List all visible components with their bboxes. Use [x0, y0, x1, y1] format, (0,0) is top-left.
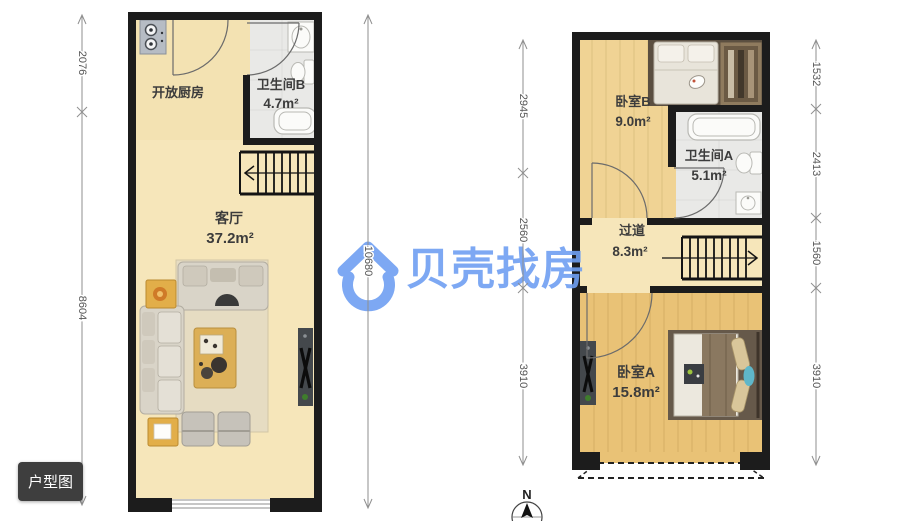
- wardrobe-icon: [720, 42, 762, 106]
- stove-icon: [140, 20, 166, 54]
- window-level1: [172, 499, 270, 509]
- room-label-bedroom-a: 卧室A: [617, 364, 655, 380]
- room-label-bathroom-a: 卫生间A: [685, 148, 734, 163]
- watermark-brand-text: 贝壳找房: [406, 245, 586, 294]
- dim-l1-10680: 10680: [362, 246, 374, 277]
- room-label-hallway: 过道: [619, 223, 645, 238]
- dim-l2-1532: 1532: [810, 62, 822, 86]
- room-area-bathroom-b: 4.7m²: [263, 96, 299, 111]
- dim-l2-3910-right: 3910: [810, 364, 822, 388]
- living-room-furniture: [140, 260, 268, 446]
- room-label-bedroom-b: 卧室B: [615, 94, 650, 109]
- dim-l1-2076: 2076: [76, 51, 88, 75]
- compass-north-label: N: [522, 487, 531, 502]
- room-label-living-room: 客厅: [214, 210, 243, 226]
- room-area-bedroom-b: 9.0m²: [615, 114, 651, 129]
- dim-l2-2560: 2560: [517, 218, 529, 242]
- dim-l2-1560: 1560: [810, 241, 822, 265]
- watermark: 贝壳找房: [343, 245, 586, 306]
- dimension-line-l1-left: [77, 15, 87, 505]
- dim-l2-2413: 2413: [810, 152, 822, 176]
- floor-plan-level2: 卧室B 9.0m² 卫生间A 5.1m² 过道 8.3m² 卧室A 15.8m²: [572, 32, 770, 478]
- room-area-bathroom-a: 5.1m²: [691, 168, 727, 183]
- floorplan-viewer[interactable]: 开放厨房 卫生间B 4.7m² 客厅 37.2m²: [0, 0, 905, 521]
- floorplan-canvas: 开放厨房 卫生间B 4.7m² 客厅 37.2m²: [0, 0, 905, 521]
- room-area-living-room: 37.2m²: [206, 230, 254, 247]
- floor-plan-level1: 开放厨房 卫生间B 4.7m² 客厅 37.2m²: [128, 12, 322, 512]
- tv-unit-level2: [580, 341, 596, 405]
- dim-l2-2945: 2945: [517, 94, 529, 118]
- room-area-hallway: 8.3m²: [612, 244, 648, 259]
- tv-unit-level1: [298, 328, 313, 406]
- compass-icon: N: [512, 487, 542, 521]
- bay-window: [578, 463, 764, 478]
- room-area-bedroom-a: 15.8m²: [612, 384, 660, 401]
- dim-l1-8604: 8604: [76, 296, 88, 320]
- dim-l2-3910-left: 3910: [517, 364, 529, 388]
- bedroom-a-bed: [668, 330, 762, 420]
- floorplan-tab-button[interactable]: 户型图: [18, 462, 83, 501]
- room-label-open-kitchen: 开放厨房: [152, 85, 204, 100]
- room-label-bathroom-b: 卫生间B: [257, 77, 305, 92]
